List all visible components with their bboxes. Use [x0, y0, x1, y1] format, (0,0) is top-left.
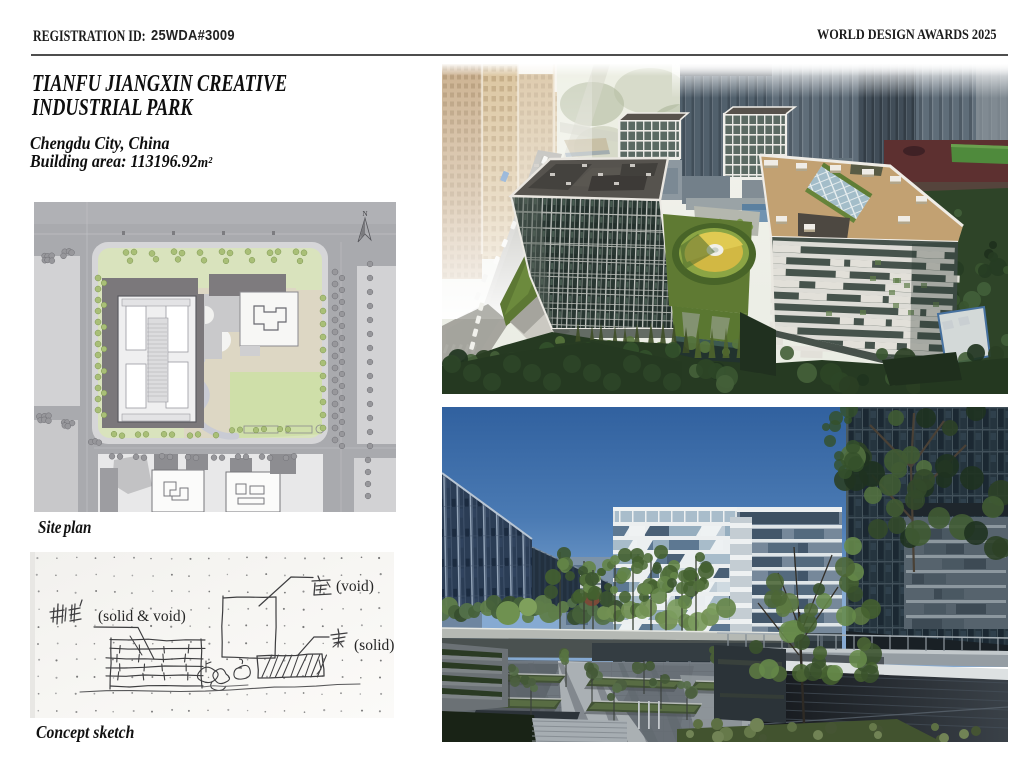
svg-text:(solid & void): (solid & void)	[98, 608, 186, 625]
svg-text:(solid): (solid)	[354, 637, 394, 654]
svg-text:N: N	[362, 210, 367, 218]
svg-text:(void): (void)	[336, 578, 374, 595]
